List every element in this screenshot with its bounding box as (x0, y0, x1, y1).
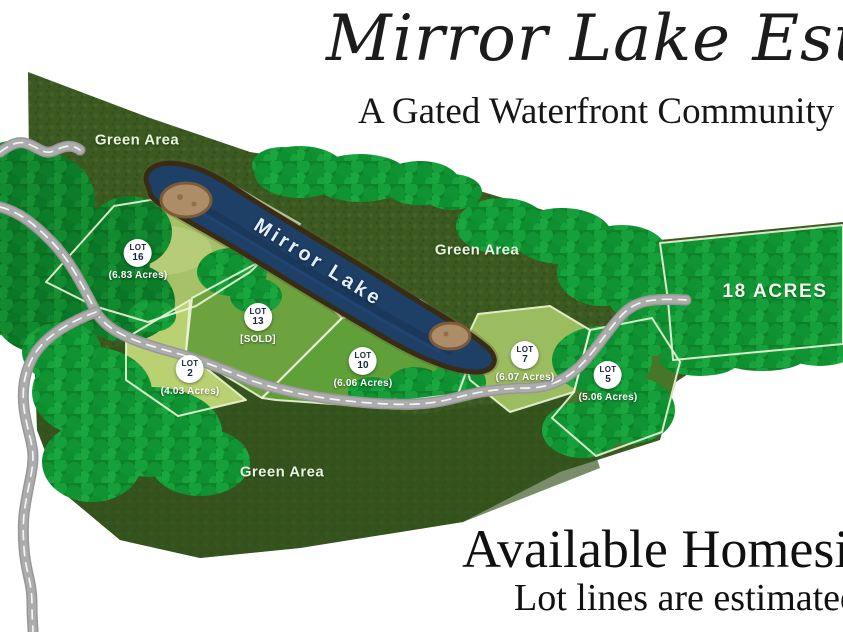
green-area-label-top: Green Area (95, 132, 179, 149)
lot-13-status: [SOLD] (240, 334, 276, 345)
green-area-label-bottom: Green Area (240, 464, 324, 481)
lot-5-marker[interactable]: LOT 5 (5.06 Acres) (579, 361, 638, 403)
lot-7-badge[interactable]: LOT 7 (511, 341, 539, 369)
lot-2-acreage: (4.03 Acres) (161, 386, 220, 397)
lot-7-marker[interactable]: LOT 7 (6.07 Acres) (496, 341, 555, 383)
page-title: Mirror Lake Estates (326, 2, 843, 76)
lot-13-marker[interactable]: LOT 13 [SOLD] (240, 303, 276, 345)
lot-13-badge[interactable]: LOT 13 (244, 303, 272, 331)
lot-2-badge[interactable]: LOT 2 (176, 355, 204, 383)
lot-16-badge[interactable]: LOT 16 (124, 239, 152, 267)
lot-16-acreage: (6.83 Acres) (109, 270, 168, 281)
large-parcel-label: 18 ACRES (722, 281, 827, 303)
lot-10-marker[interactable]: LOT 10 (6.06 Acres) (334, 347, 393, 389)
site-plan-page: Mirror Lake Estates A Gated Waterfront C… (0, 0, 843, 632)
lot-10-acreage: (6.06 Acres) (334, 378, 393, 389)
green-area-label-middle: Green Area (435, 242, 519, 259)
page-subtitle: A Gated Waterfront Community (358, 90, 834, 133)
footer-note: Lot lines are estimated (514, 576, 843, 620)
footer-heading: Available Homesites (462, 518, 843, 580)
lot-2-marker[interactable]: LOT 2 (4.03 Acres) (161, 355, 220, 397)
lot-7-acreage: (6.07 Acres) (496, 372, 555, 383)
lot-5-badge[interactable]: LOT 5 (594, 361, 622, 389)
lot-5-acreage: (5.06 Acres) (579, 392, 638, 403)
lot-16-marker[interactable]: LOT 16 (6.83 Acres) (109, 239, 168, 281)
lot-10-badge[interactable]: LOT 10 (349, 347, 377, 375)
